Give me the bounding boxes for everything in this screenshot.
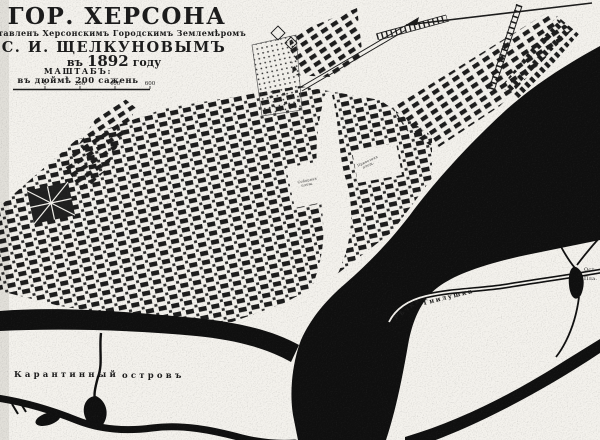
historic-city-map: ГОР. ХЕРСОНА составленъ Херсонскимъ Горо… (0, 0, 600, 440)
paper-grain-overlay (0, 0, 600, 440)
map-canvas: ГОР. ХЕРСОНА составленъ Херсонскимъ Горо… (0, 0, 600, 440)
